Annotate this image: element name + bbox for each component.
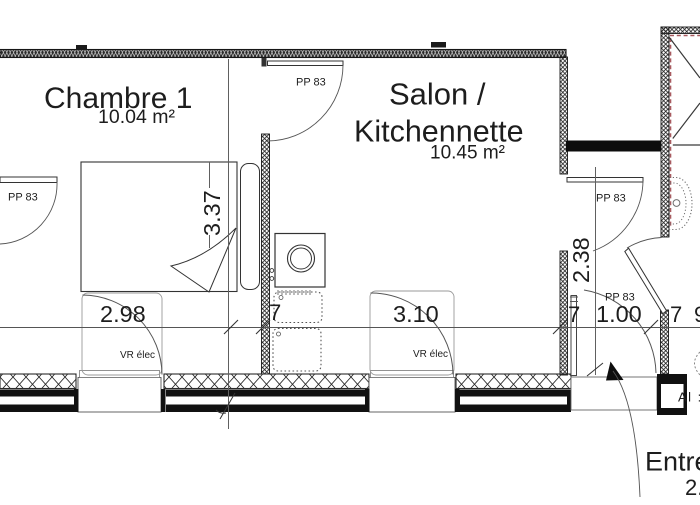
svg-text:VR élec: VR élec	[120, 350, 155, 361]
svg-text:2.: 2.	[685, 475, 700, 500]
svg-text:Entrée: Entrée	[645, 447, 700, 477]
svg-text:7: 7	[568, 302, 580, 327]
svg-text:10.04 m²: 10.04 m²	[98, 106, 175, 128]
svg-text:2.98: 2.98	[100, 301, 146, 327]
svg-text:3.10: 3.10	[393, 301, 439, 327]
svg-text:Salon /: Salon /	[389, 77, 486, 112]
svg-text:10.45 m²: 10.45 m²	[430, 143, 505, 164]
svg-text:PP 83: PP 83	[296, 77, 326, 89]
svg-text:7: 7	[269, 300, 281, 325]
svg-text:9: 9	[694, 302, 700, 327]
svg-text:2.38: 2.38	[568, 237, 594, 283]
svg-text:Al :: Al :	[678, 390, 700, 405]
svg-text:VR élec: VR élec	[413, 349, 448, 360]
svg-text:7: 7	[670, 302, 682, 327]
svg-text:PP 83: PP 83	[596, 193, 626, 205]
svg-text:3.37: 3.37	[199, 190, 225, 236]
svg-text:1.00: 1.00	[596, 301, 642, 327]
svg-text:PP 83: PP 83	[8, 192, 38, 204]
